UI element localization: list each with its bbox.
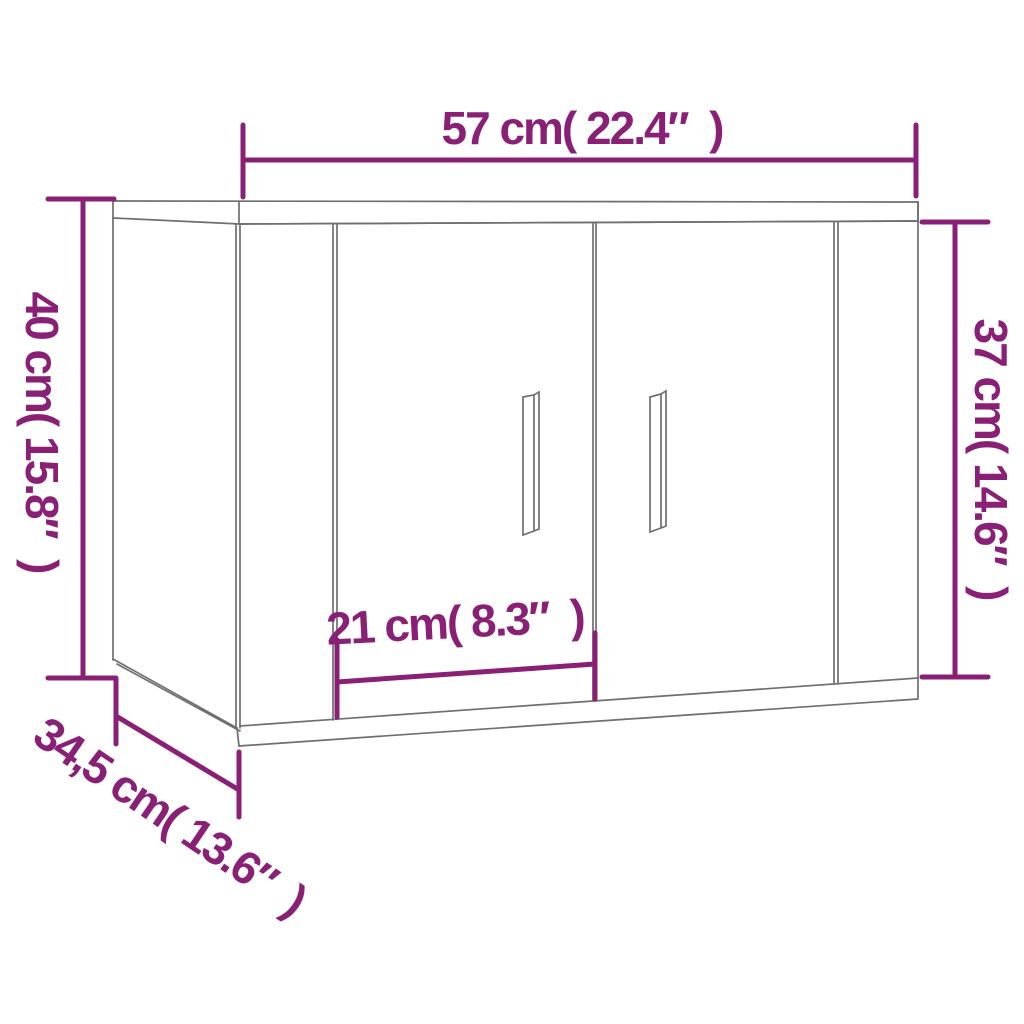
left-door-handle <box>523 392 539 535</box>
cabinet-top-panel <box>113 201 918 224</box>
height-overall-dimension-label: 40 cm( 15.8″ ) <box>17 232 67 632</box>
right-door-handle <box>650 391 666 532</box>
cabinet-left-side-panel <box>113 218 240 731</box>
right-door <box>834 222 838 684</box>
cabinet-outline <box>113 201 918 746</box>
dimension-lines <box>48 125 988 817</box>
dimension-diagram: 57 cm( 22.4″ ) 40 cm( 15.8″ ) 37 cm( 14.… <box>0 0 1024 1024</box>
height-front-dimension-label: 37 cm( 14.6″ ) <box>966 259 1016 659</box>
width-dimension-label: 57 cm( 22.4″ ) <box>382 103 782 153</box>
